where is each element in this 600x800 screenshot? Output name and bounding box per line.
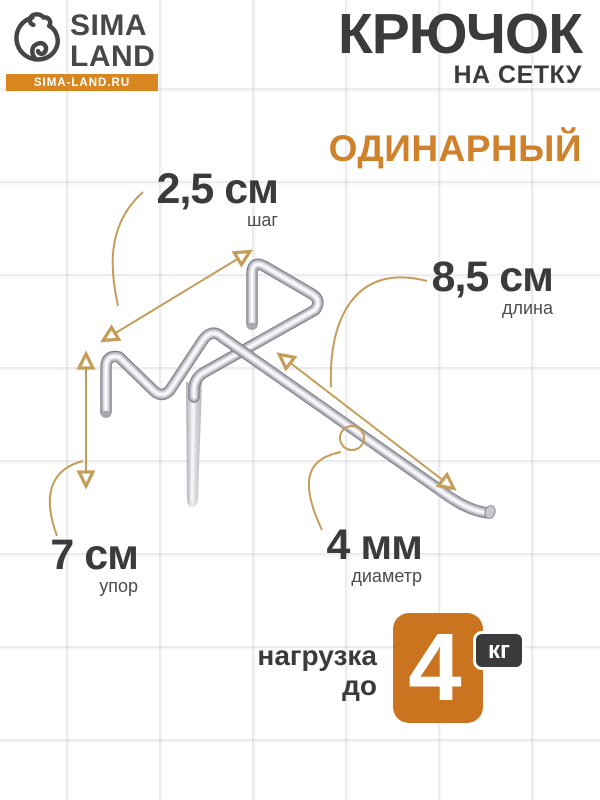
dimension-diameter-label: диаметр (316, 567, 422, 586)
load-unit: кг (488, 637, 510, 665)
brand-site-url: SIMA-LAND.RU (34, 77, 130, 89)
load-unit-badge: кг (473, 631, 525, 670)
title-block: КРЮЧОК НА СЕТКУ (338, 4, 582, 88)
dimension-step: 2,5 см шаг (120, 168, 278, 230)
bear-icon (10, 8, 66, 68)
dimension-diameter-value: 4 мм (316, 524, 422, 566)
dimension-diameter: 4 мм диаметр (316, 524, 422, 586)
dimension-length: 8,5 см длина (415, 256, 553, 318)
brand-logo: SIMA LAND (10, 8, 155, 70)
load-caption-line2: до (245, 671, 377, 701)
dimension-stop: 7 см упор (35, 534, 138, 596)
load-value-badge: 4 (393, 613, 483, 723)
dimension-stop-label: упор (35, 577, 138, 596)
load-value: 4 (408, 620, 461, 716)
product-title: КРЮЧОК (338, 4, 582, 64)
brand-site-bar: SIMA-LAND.RU (6, 74, 158, 91)
product-variant: ОДИНАРНЫЙ (329, 128, 582, 170)
dimension-length-value: 8,5 см (415, 256, 553, 298)
dimension-step-label: шаг (120, 211, 278, 230)
length-arrow (280, 355, 453, 488)
diameter-connector-line (309, 452, 341, 530)
brand-name-line1: SIMA (70, 8, 155, 39)
load-caption: нагрузка до (245, 641, 377, 701)
hook-prong (101, 333, 497, 520)
dimension-length-label: длина (415, 299, 553, 318)
step-arrow (104, 252, 249, 340)
dimension-step-value: 2,5 см (120, 168, 278, 210)
length-connector-line (331, 277, 427, 387)
load-caption-line1: нагрузка (245, 641, 377, 671)
product-image: SIMA LAND SIMA-LAND.RU КРЮЧОК НА СЕТКУ О… (0, 0, 600, 800)
stop-connector-line (50, 461, 83, 536)
brand-name-line2: LAND (70, 39, 155, 70)
dimension-stop-value: 7 см (35, 534, 138, 576)
